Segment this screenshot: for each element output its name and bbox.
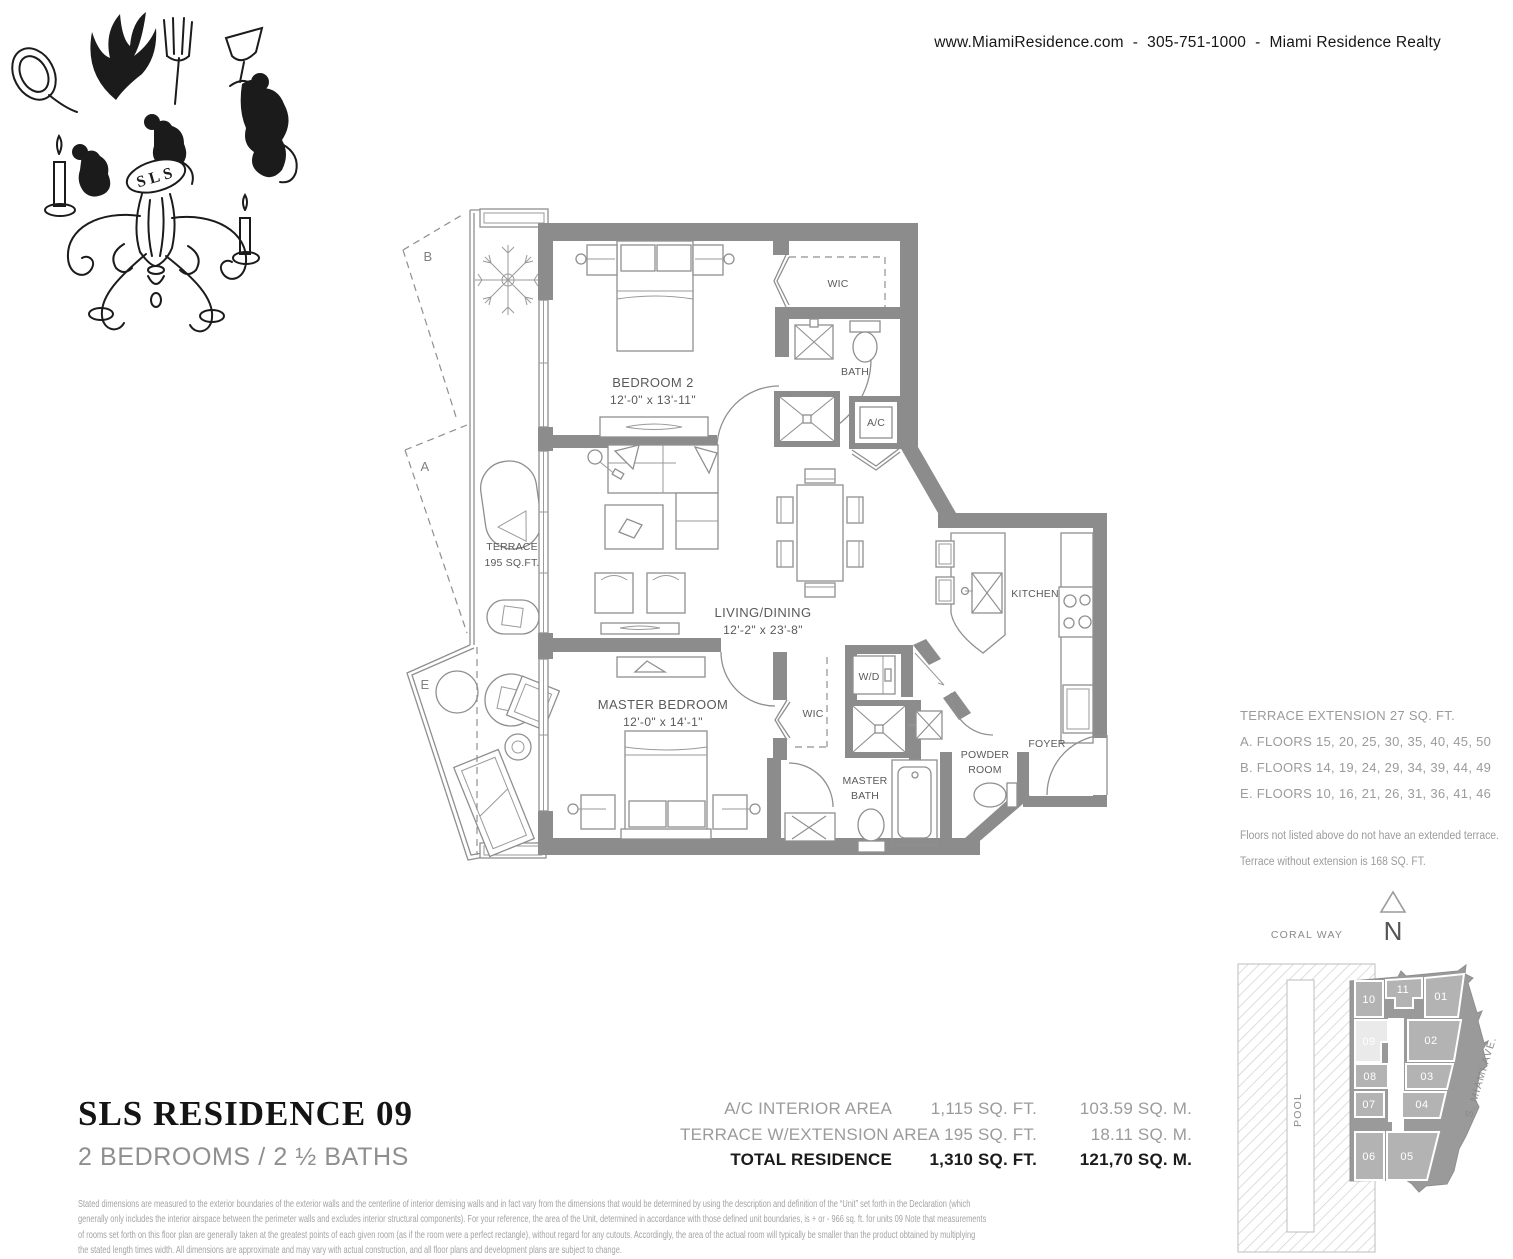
master-bedroom: MASTER BEDROOM 12'-0" x 14'-1" xyxy=(568,652,775,839)
terrace-lounge-chair xyxy=(477,458,545,553)
powder-label-2: ROOM xyxy=(968,764,1001,776)
ac-label: A/C xyxy=(867,417,885,429)
door-arc xyxy=(721,652,775,706)
door-arc xyxy=(789,763,833,807)
extension-b-boundary xyxy=(403,215,462,420)
unit-number-01: 01 xyxy=(1434,991,1447,1003)
unit-number-05: 05 xyxy=(1400,1151,1413,1163)
disclaimer-line: the stated length times width. All dimen… xyxy=(78,1243,988,1258)
extension-a-boundary xyxy=(405,425,467,633)
master-bath-label-2: BATH xyxy=(851,790,879,802)
terrace-note-2: Terrace without extension is 168 SQ. FT. xyxy=(1240,849,1513,875)
nightstand xyxy=(713,795,747,829)
terrace-notes-line-a: A. FLOORS 15, 20, 25, 30, 35, 40, 45, 50 xyxy=(1240,729,1513,755)
terrace-plant xyxy=(475,245,541,315)
bifold-door xyxy=(774,255,789,307)
unit-number-10: 10 xyxy=(1362,994,1375,1006)
unit-number-11: 11 xyxy=(1397,984,1409,996)
dining-chair xyxy=(777,541,793,567)
nightstand xyxy=(587,245,617,275)
door-arc xyxy=(717,386,779,448)
master-wic-label: WIC xyxy=(802,708,823,720)
terrace-notes-line-b: B. FLOORS 14, 19, 24, 29, 34, 39, 44, 49 xyxy=(1240,755,1513,781)
north-label: N xyxy=(1384,916,1403,946)
disclaimer-line: of rooms set forth on this floor plan ar… xyxy=(78,1228,988,1243)
wd-label: W/D xyxy=(858,671,879,683)
nightstand xyxy=(581,795,615,829)
master-dim: 12'-0" x 14'-1" xyxy=(623,715,703,729)
bedroom2-dim: 12'-0" x 13'-11" xyxy=(610,393,696,407)
chandelier-art: SLS xyxy=(4,12,297,331)
master-bath: MASTER BATH xyxy=(785,703,942,852)
area-row-label: TERRACE W/EXTENSION AREA xyxy=(680,1122,892,1148)
title-block: SLS RESIDENCE 09 2 BEDROOMS / 2 ½ BATHS xyxy=(78,1094,413,1172)
wic2-label: WIC xyxy=(827,278,848,290)
leaf-plume xyxy=(90,12,156,100)
page-subtitle: 2 BEDROOMS / 2 ½ BATHS xyxy=(78,1143,413,1172)
floor-plan: B A E TERRACE 195 SQ.FT. xyxy=(395,195,1135,875)
chandelier-body xyxy=(136,194,174,307)
marker-e: E xyxy=(421,677,430,692)
bifold-door xyxy=(775,700,790,740)
area-row-sqm: 18.11 SQ. M. xyxy=(1037,1122,1192,1148)
sls-chandelier-logo: SLS xyxy=(4,4,304,334)
dining-chair xyxy=(847,541,863,567)
floor-lamp xyxy=(588,450,602,464)
disclaimer-line: Stated dimensions are measured to the ex… xyxy=(78,1197,988,1212)
dining-chair xyxy=(805,469,835,483)
header-contact: www.MiamiResidence.com - 305-751-1000 - … xyxy=(934,34,1441,52)
unit-number-09: 09 xyxy=(1362,1036,1375,1048)
dresser xyxy=(600,417,708,437)
rug xyxy=(605,505,663,549)
nightstand xyxy=(693,245,723,275)
powder-label-1: POWDER xyxy=(961,749,1010,761)
mirror-ornament xyxy=(4,41,77,112)
stove xyxy=(1059,587,1093,637)
unit-number-03: 03 xyxy=(1420,1071,1433,1083)
living-label: LIVING/DINING xyxy=(715,605,812,620)
terrace-notes-title: TERRACE EXTENSION 27 SQ. FT. xyxy=(1240,703,1513,729)
console xyxy=(601,623,679,634)
building-footprint: 10 11 01 09 02 08 03 07 04 06 05 xyxy=(1350,965,1488,1192)
site-plan: CORAL WAY N POOL 10 11 xyxy=(1230,880,1513,1256)
coral-way-label: CORAL WAY xyxy=(1271,929,1343,941)
area-total-sqm: 121,70 SQ. M. xyxy=(1037,1147,1192,1173)
toilet xyxy=(858,809,884,841)
disclaimer: Stated dimensions are measured to the ex… xyxy=(78,1197,988,1259)
dining-chair xyxy=(777,497,793,523)
area-total-sqft: 1,310 SQ. FT. xyxy=(892,1147,1037,1173)
living-dim: 12'-2" x 23'-8" xyxy=(723,623,803,637)
bedroom2-label: BEDROOM 2 xyxy=(612,375,694,390)
unit-number-06: 06 xyxy=(1362,1151,1375,1163)
dining-chair xyxy=(847,497,863,523)
page-title: SLS RESIDENCE 09 xyxy=(78,1094,413,1134)
kitchen-label: KITCHEN xyxy=(1011,588,1059,600)
terrace-table xyxy=(436,671,478,713)
pool-label: POOL xyxy=(1292,1093,1304,1127)
foyer-label: FOYER xyxy=(1028,738,1065,750)
terrace-extension-notes: TERRACE EXTENSION 27 SQ. FT. A. FLOORS 1… xyxy=(1240,703,1513,875)
area-table: A/C INTERIOR AREA 1,115 SQ. FT. 103.59 S… xyxy=(680,1096,1192,1173)
area-row-label: A/C INTERIOR AREA xyxy=(680,1096,892,1122)
marker-a: A xyxy=(421,459,430,474)
candle-left xyxy=(45,136,75,216)
dining-chair xyxy=(805,583,835,597)
terrace-notes-line-e: E. FLOORS 10, 16, 21, 26, 31, 36, 41, 46 xyxy=(1240,781,1513,807)
area-total-label: TOTAL RESIDENCE xyxy=(680,1147,892,1173)
ac-closet: A/C xyxy=(852,399,900,470)
toilet xyxy=(974,783,1006,807)
dresser xyxy=(617,657,705,677)
disclaimer-line: generally only includes the interior air… xyxy=(78,1212,988,1227)
unit-number-08: 08 xyxy=(1363,1071,1376,1083)
unit-number-02: 02 xyxy=(1424,1035,1437,1047)
terrace-area-label: 195 SQ.FT. xyxy=(484,557,539,569)
terrace: B A E TERRACE 195 SQ.FT. xyxy=(403,209,559,860)
terrace-label: TERRACE xyxy=(486,541,538,553)
terrace-note-1: Floors not listed above do not have an e… xyxy=(1240,823,1513,849)
area-row-sqm: 103.59 SQ. M. xyxy=(1037,1096,1192,1122)
north-arrow: N xyxy=(1381,892,1405,946)
foyer: FOYER xyxy=(1028,735,1107,795)
living-dining: LIVING/DINING 12'-2" x 23'-8" xyxy=(588,445,863,637)
terrace-oval-table xyxy=(487,600,539,634)
area-row-sqft: 195 SQ. FT. xyxy=(892,1122,1037,1148)
master-label: MASTER BEDROOM xyxy=(598,697,729,712)
area-row-sqft: 1,115 SQ. FT. xyxy=(892,1096,1037,1122)
fork-ornament xyxy=(164,18,192,104)
marker-b: B xyxy=(424,249,433,264)
toilet xyxy=(850,321,880,332)
window-strips xyxy=(539,300,548,811)
armchair xyxy=(595,573,633,613)
bath-label: BATH xyxy=(841,366,869,378)
bedroom2: BEDROOM 2 12'-0" x 13'-11" xyxy=(576,241,779,448)
dining-table xyxy=(797,485,843,581)
wic2: WIC xyxy=(774,255,885,307)
monkey-figures xyxy=(72,73,297,197)
unit-number-07: 07 xyxy=(1362,1099,1375,1111)
master-bath-label-1: MASTER xyxy=(843,775,888,787)
armchair xyxy=(647,573,685,613)
ac-louver-door xyxy=(852,448,900,470)
unit-number-04: 04 xyxy=(1415,1099,1428,1111)
terrace-side-table xyxy=(505,734,531,760)
